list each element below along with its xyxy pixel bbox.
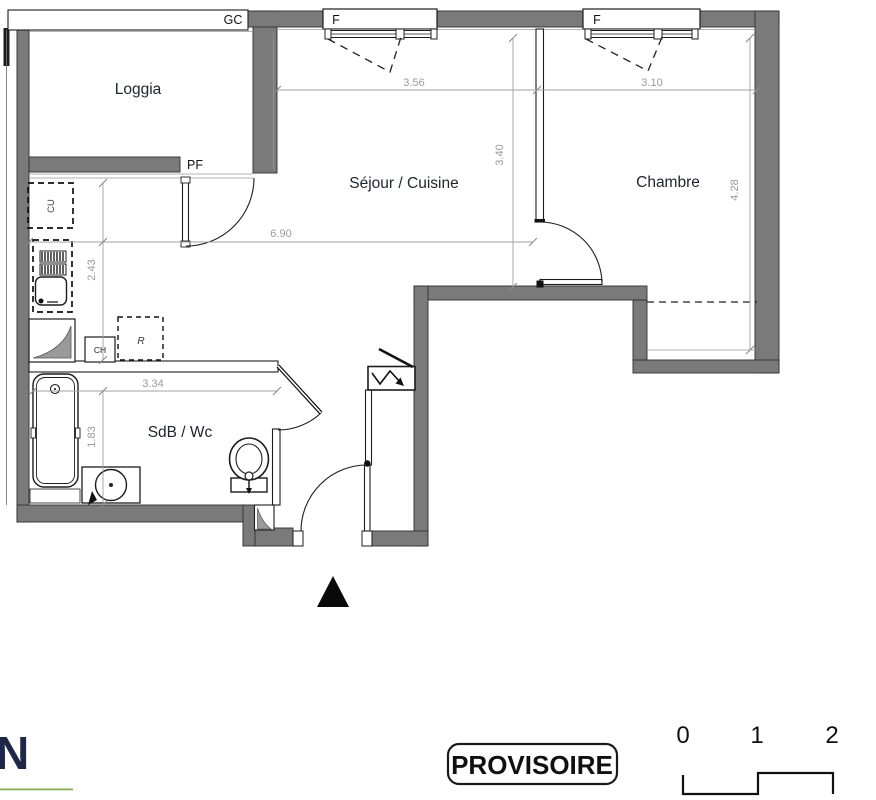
pf-door: [181, 177, 254, 247]
wall-sdb-east: [273, 429, 281, 505]
threshold-triangle-symbol: [255, 505, 275, 530]
logo-letter: N: [0, 727, 29, 779]
panel-flap: [379, 349, 413, 367]
window-box-sejour: [323, 9, 437, 29]
label-gc: GC: [224, 13, 243, 27]
gc-duct-box: [8, 10, 248, 30]
chambre-door-arc: [540, 222, 602, 284]
dim-overall-width: 6.90: [270, 228, 291, 240]
label-sdb-wc: SdB / Wc: [148, 424, 213, 441]
logo-green-line: [0, 789, 73, 791]
label-chambre: Chambre: [636, 174, 700, 191]
wall-sdb-bottom: [17, 505, 245, 522]
wall-hall-thin: [366, 390, 372, 465]
electrical-panel-symbol: [368, 349, 415, 390]
wall-step-bottom: [255, 528, 293, 546]
scale-bar: 0 1 2: [676, 722, 838, 794]
scale-tick-2: 2: [825, 722, 838, 749]
dim-sejour-depth: 3.40: [494, 144, 506, 165]
scale-bar-line: [683, 773, 833, 794]
stamp-text: PROVISOIRE: [451, 750, 613, 780]
label-window-f-chambre: F: [593, 13, 601, 27]
floor-plan-drawing: 3.56 3.10 3.40 4.28 6.90 2.43 3.34 1.83 …: [0, 0, 876, 800]
chambre-door: [537, 222, 603, 288]
label-sejour-cuisine: Séjour / Cuisine: [349, 175, 458, 192]
wall-notch-horizontal: [414, 286, 647, 300]
entrance-door-arc: [301, 465, 367, 531]
hob-symbol: [40, 251, 66, 275]
label-window-f-sejour: F: [332, 13, 340, 27]
entrance-arrow-icon: [317, 576, 349, 607]
scale-tick-1: 1: [750, 722, 763, 749]
wall-entrance-bottom: [372, 531, 428, 546]
window-opening-dashes-chambre: [586, 37, 662, 71]
sdb-door-arc: [278, 413, 321, 430]
toilet-symbol: [230, 438, 269, 494]
dim-sdb-width: 3.34: [142, 378, 163, 390]
dim-sdb-depth: 1.83: [86, 426, 98, 447]
wall-loggia-bottom: [29, 157, 180, 172]
wall-left: [17, 27, 29, 522]
bathtub-symbol: [30, 374, 80, 503]
wall-notch-vertical: [633, 300, 647, 360]
window-opening-dashes-sejour: [328, 37, 401, 72]
worktop-triangle-symbol: [29, 319, 75, 362]
dimension-ticks: [25, 34, 761, 509]
entrance-door: [293, 460, 372, 546]
dim-chambre-depth: 4.28: [729, 179, 741, 200]
wall-right: [755, 11, 779, 373]
wall-chambre-bottom: [633, 360, 779, 373]
window-glazing-sejour: [325, 29, 437, 39]
label-loggia: Loggia: [115, 81, 162, 98]
dim-chambre-width: 3.10: [641, 77, 662, 89]
dim-sejour-width: 3.56: [403, 77, 424, 89]
wall-sdb-top: [29, 361, 278, 372]
window-glazing-chambre: [585, 29, 698, 39]
wall-top-2: [437, 11, 583, 27]
wall-top-1: [248, 11, 323, 27]
washbasin-symbol: [82, 467, 140, 505]
label-ch: CH: [94, 345, 106, 355]
label-cu: CU: [46, 199, 57, 213]
provisional-stamp: PROVISOIRE: [448, 744, 617, 784]
sdb-door: [278, 366, 321, 430]
kitchen-sink-symbol: [36, 277, 67, 305]
dim-kitchen-depth: 2.43: [86, 259, 98, 280]
floor-plan-page: 3.56 3.10 3.40 4.28 6.90 2.43 3.34 1.83 …: [0, 0, 876, 800]
logo: N: [0, 727, 73, 790]
dimension-lines: [29, 38, 757, 505]
pf-door-arc: [186, 178, 254, 246]
wall-hall-right: [414, 286, 428, 546]
label-pf: PF: [187, 158, 203, 172]
label-refrigerator: R: [137, 336, 144, 347]
wall-sejour-chambre: [536, 29, 544, 222]
scale-tick-0: 0: [676, 722, 689, 749]
